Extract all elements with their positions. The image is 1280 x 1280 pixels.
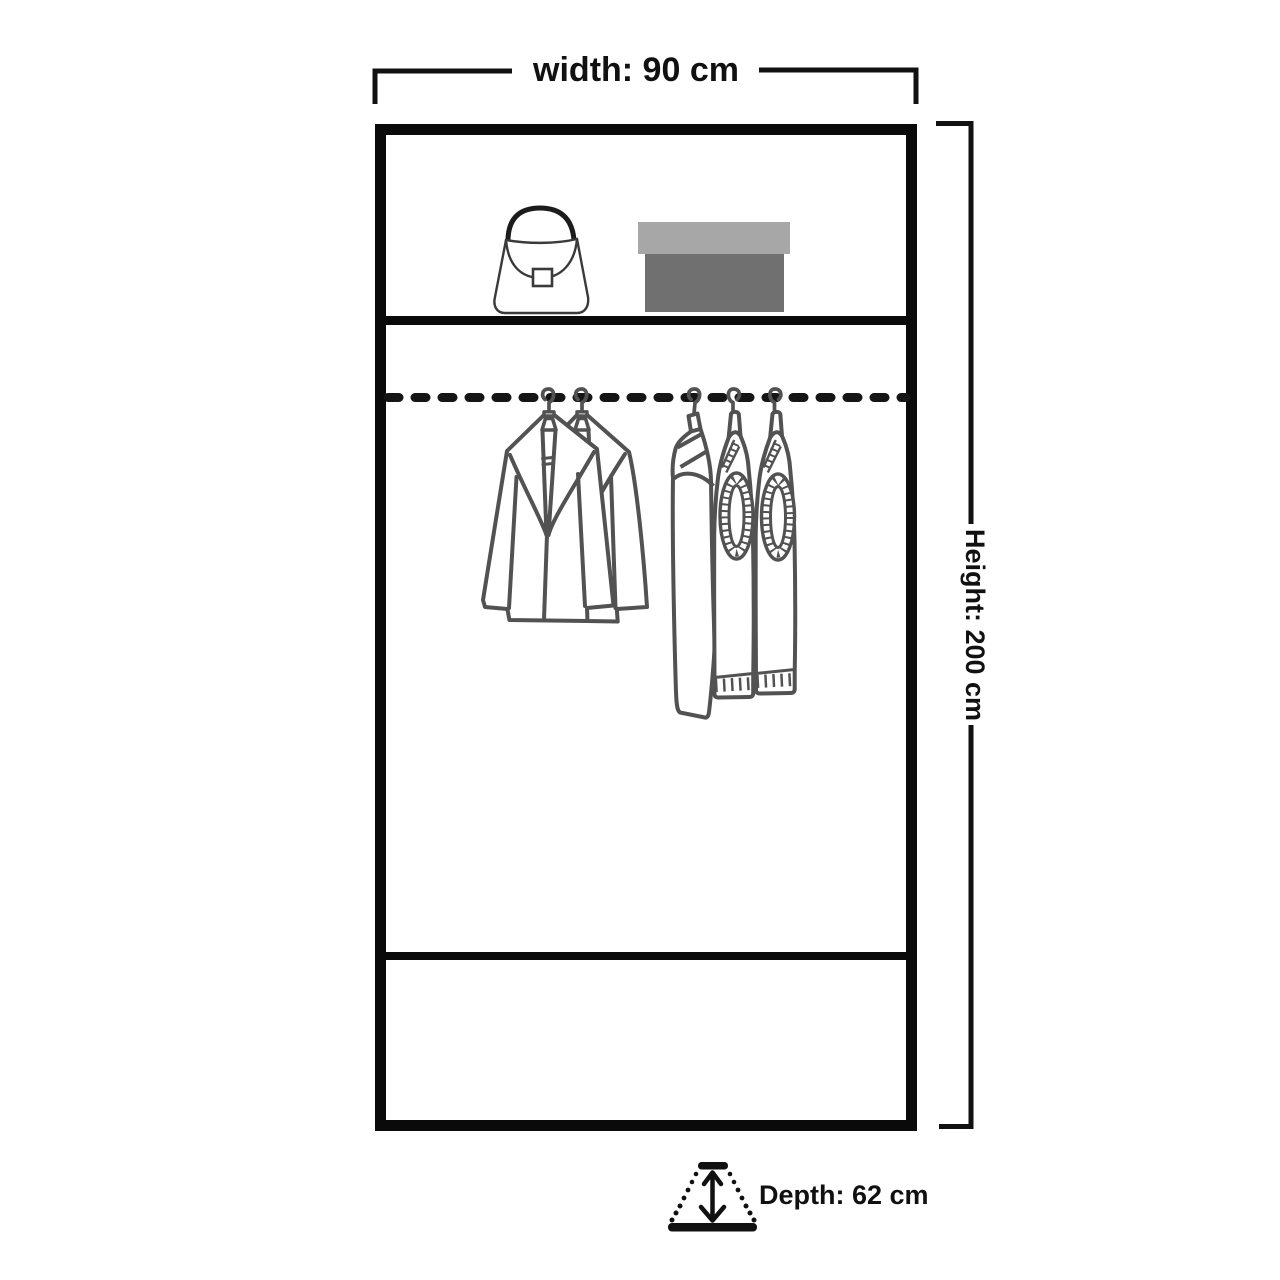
svg-text:width: 90 cm: width: 90 cm [532,51,739,89]
svg-text:Depth: 62 cm: Depth: 62 cm [759,1180,929,1210]
svg-text:Height: 200 cm: Height: 200 cm [960,529,990,721]
